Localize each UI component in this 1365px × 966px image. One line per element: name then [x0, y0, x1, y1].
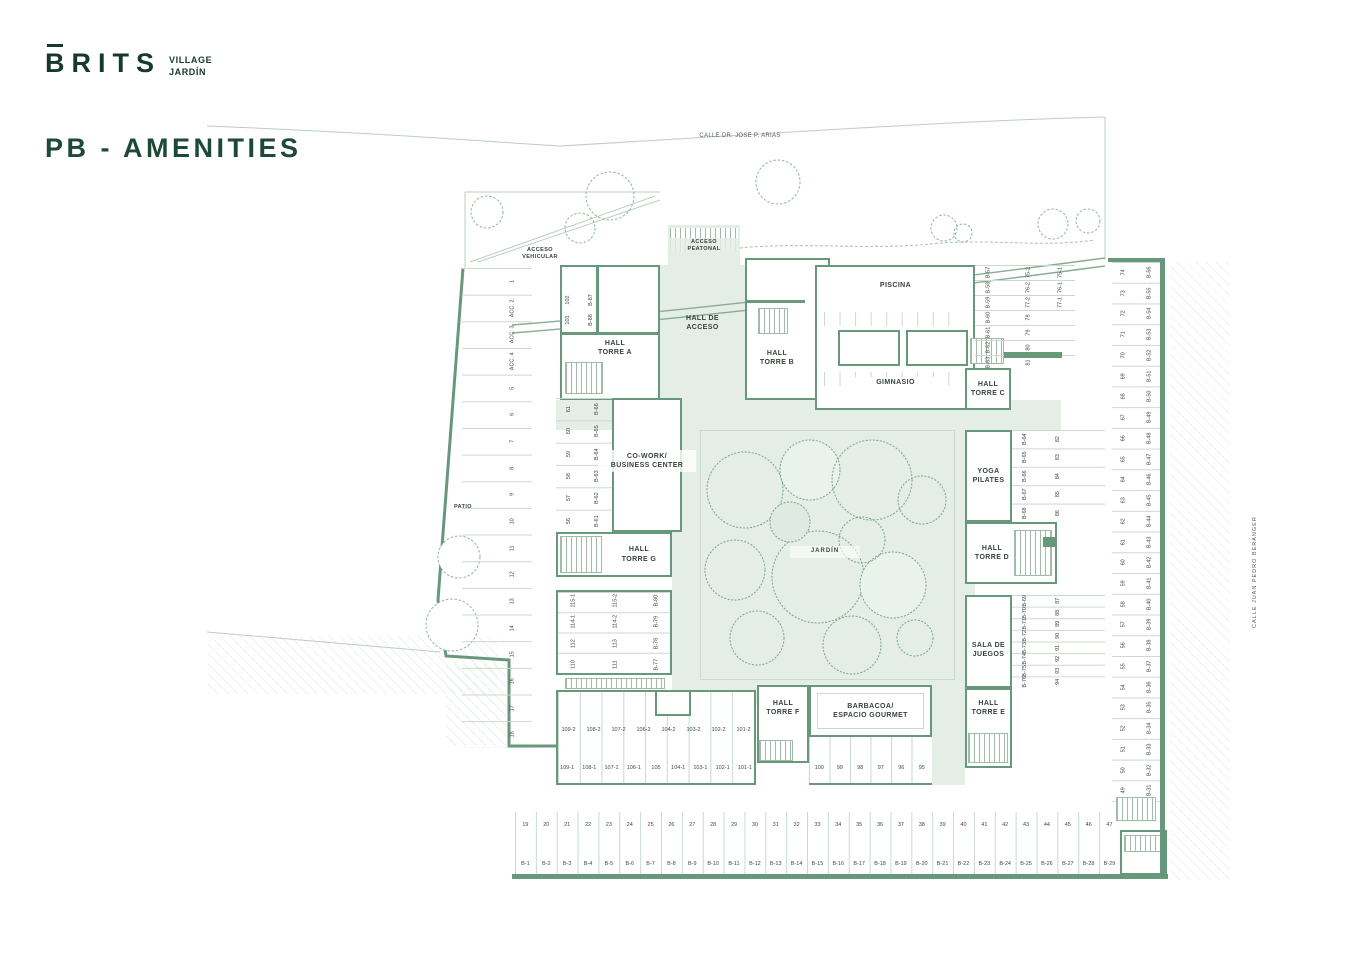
- stall-label: 101-2: [731, 718, 756, 742]
- stall-label: 27: [682, 816, 703, 834]
- stall-label: 94: [1052, 669, 1064, 695]
- stall-label: B-24: [995, 856, 1016, 872]
- bottomleft-notch: [655, 690, 691, 716]
- shrub-line: [740, 240, 1095, 248]
- stall-label: 101-1: [734, 756, 756, 780]
- stall-label: 22: [578, 816, 599, 834]
- stall-label: B-61: [586, 508, 608, 534]
- stall-label: B-5: [598, 856, 619, 872]
- stall-label: 103-1: [689, 756, 711, 780]
- stall-label: 26: [661, 816, 682, 834]
- stall-label: 46: [1078, 816, 1099, 834]
- stall-label: 44: [1036, 816, 1057, 834]
- stall-label: B-77: [645, 650, 666, 678]
- pool-lane-1: [838, 330, 900, 366]
- torre-e-label: HALL TORRE E: [966, 698, 1011, 718]
- stall-label: B-14: [786, 856, 807, 872]
- stall-label: 25: [640, 816, 661, 834]
- stall-label: B-7: [640, 856, 661, 872]
- stall-label: B-15: [807, 856, 828, 872]
- torre-a-stair: [565, 362, 603, 394]
- street-label-top: CALLE DR. JOSE P. ARIAS: [640, 133, 840, 139]
- stall-label: 29: [724, 816, 745, 834]
- midleft-col-c: B-80B-79B-78B-77: [642, 590, 670, 675]
- stall-label: B-8: [661, 856, 682, 872]
- stall-label: B-1: [515, 856, 536, 872]
- stall-label: 100: [809, 758, 830, 778]
- stall-label: B-12: [744, 856, 765, 872]
- right-strip-codes: B-56B-55B-54B-53B-52B-51B-50B-49B-48B-47…: [1138, 262, 1162, 822]
- cowork-label: CO-WORK/ BUSINESS CENTER: [598, 450, 696, 472]
- right-strip-numbers: 7473727170696867666564636261605958575655…: [1112, 262, 1136, 822]
- stall-label: 109-1: [556, 756, 578, 780]
- midleft-col-a: 115-1114-1112110: [558, 590, 588, 675]
- stall-label: 105: [645, 756, 667, 780]
- stall-label: B-6: [619, 856, 640, 872]
- topright-codes: B-57B-58B-59B-60B-61B-62B-63: [975, 265, 1001, 370]
- stall-label: B-63: [981, 350, 996, 376]
- stall-label: 107-2: [606, 718, 631, 742]
- torre-g-label: HALL TORRE G: [608, 538, 670, 571]
- stall-label: B-25: [1016, 856, 1037, 872]
- torre-b-wall: [745, 300, 805, 303]
- hall-acceso-label: HALL DE ACCESO: [660, 310, 745, 336]
- stall-label: 41: [974, 816, 995, 834]
- stall-label: 104-1: [667, 756, 689, 780]
- yoga-label: YOGA PILATES: [966, 466, 1011, 486]
- stall-label: 106-1: [623, 756, 645, 780]
- stall-label: 56: [558, 508, 580, 534]
- stall-label: B-9: [682, 856, 703, 872]
- yoga-parking-codes: B-64B-65B-66B-67B-68: [1012, 430, 1038, 522]
- stall-label: 108-2: [581, 718, 606, 742]
- barbacoa-label: BARBACOA/ ESPACIO GOURMET: [817, 693, 924, 729]
- south-perimeter-wall: [512, 874, 1168, 879]
- torre-a-codes-1: 102101: [561, 290, 575, 330]
- torre-e-stair: [968, 733, 1008, 763]
- torre-d-shaft: [1043, 537, 1057, 547]
- stall-label: 10: [500, 506, 527, 536]
- stall-label: 104-2: [656, 718, 681, 742]
- bottom-strip-numbers: 1920212223242526272829303132333435363738…: [515, 816, 1120, 834]
- stall-label: 109-2: [556, 718, 581, 742]
- stall-label: 1: [500, 266, 527, 296]
- jardin-label: JARDÍN: [790, 546, 860, 558]
- torre-a-codes-2: B-87B-88: [584, 290, 598, 330]
- stall-label: 34: [828, 816, 849, 834]
- torre-b-label: HALL TORRE B: [748, 348, 806, 368]
- street-label-right: CALLE JUAN PEDRO BERANGER: [1252, 492, 1264, 652]
- stall-label: B-76: [1019, 669, 1031, 695]
- stall-label: 21: [557, 816, 578, 834]
- stall-label: 111: [604, 649, 625, 679]
- stall-label: B-26: [1036, 856, 1057, 872]
- stall-label: 40: [953, 816, 974, 834]
- stall-label: B-3: [557, 856, 578, 872]
- stall-label: B-27: [1057, 856, 1078, 872]
- torre-a-wall: [560, 332, 660, 335]
- bottom-strip-codes: B-1B-2B-3B-4B-5B-6B-7B-8B-9B-10B-11B-12B…: [515, 856, 1120, 872]
- stall-label: B-22: [953, 856, 974, 872]
- stall-label: B-2: [536, 856, 557, 872]
- stall-label: B-28: [1078, 856, 1099, 872]
- acceso-peatonal-label: ACCESO PEATONAL: [668, 238, 740, 254]
- stall-label: 16: [500, 666, 527, 696]
- east-perimeter-wall: [1160, 258, 1165, 879]
- stall-label: 28: [703, 816, 724, 834]
- west-parking-numbers: 1ACC. 2ACC. 3ACC. 4567891011121314151617…: [498, 268, 528, 748]
- stall-label: B-10: [703, 856, 724, 872]
- bottomleft-row-top: 109-2108-2107-2106-2104-2103-2102-2101-2: [556, 718, 756, 742]
- stall-label: 99: [830, 758, 851, 778]
- stall-label: 36: [870, 816, 891, 834]
- sala-juegos-label: SALA DE JUEGOS: [966, 640, 1011, 660]
- topright-numbers-1: 75-176-177-1: [1046, 265, 1074, 310]
- stall-label: B-87: [581, 293, 601, 307]
- stall-label: 33: [807, 816, 828, 834]
- juegos-parking-numbers: 8788899091929394: [1045, 595, 1071, 688]
- stall-label: 96: [891, 758, 912, 778]
- torre-b-stair: [758, 308, 788, 334]
- stall-label: 95: [912, 758, 933, 778]
- stall-label: 35: [849, 816, 870, 834]
- bottomcenter-numbers: 1009998979695: [809, 758, 932, 778]
- acceso-vehicular-label: ACCESO VEHICULAR: [505, 246, 575, 262]
- stall-label: 13: [500, 586, 527, 616]
- piscina-label: PISCINA: [848, 280, 943, 292]
- stall-label: B-88: [581, 313, 601, 327]
- stall-label: 103-2: [681, 718, 706, 742]
- stall-label: B-29: [1099, 856, 1120, 872]
- stall-label: B-19: [890, 856, 911, 872]
- stall-label: B-4: [578, 856, 599, 872]
- stall-label: 102: [558, 293, 578, 307]
- stall-label: 7: [500, 426, 527, 456]
- stall-label: 98: [850, 758, 871, 778]
- stall-label: 24: [619, 816, 640, 834]
- bottomleft-row-bottom: 109-1108-1107-1106-1105104-1103-1102-110…: [556, 756, 756, 780]
- yoga-parking-numbers: 8283848586: [1045, 430, 1071, 522]
- stall-label: B-16: [828, 856, 849, 872]
- tree-icon: [471, 160, 1100, 243]
- stall-label: B-20: [911, 856, 932, 872]
- stall-label: 18: [500, 720, 527, 750]
- street-top-line: [207, 117, 1105, 146]
- stall-label: 108-1: [578, 756, 600, 780]
- stall-label: B-11: [724, 856, 745, 872]
- east-strip-stair: [1116, 797, 1156, 821]
- ramp: [565, 678, 665, 689]
- pool-loungers-top: [824, 312, 964, 326]
- stall-label: B-13: [765, 856, 786, 872]
- torre-c-label: HALL TORRE C: [966, 380, 1010, 398]
- stall-label: 12: [500, 560, 527, 590]
- stall-label: 110: [562, 649, 583, 679]
- cowork-parking-numbers: 616059585756: [556, 398, 582, 532]
- stall-label: 19: [515, 816, 536, 834]
- stall-label: 38: [911, 816, 932, 834]
- torre-f-stair: [759, 740, 793, 761]
- pool-lane-2: [906, 330, 968, 366]
- southeast-stair: [1124, 835, 1162, 852]
- stall-label: 39: [932, 816, 953, 834]
- stall-label: 107-1: [600, 756, 622, 780]
- stall-label: 23: [598, 816, 619, 834]
- stall-label: 42: [995, 816, 1016, 834]
- topright-wall: [1004, 352, 1062, 358]
- juegos-parking-codes: B-69B-70B-71B-72B-73B-74B-75B-76: [1012, 595, 1038, 688]
- torre-f-label: HALL TORRE F: [758, 698, 808, 718]
- stall-label: 9: [500, 480, 527, 510]
- stall-label: B-18: [870, 856, 891, 872]
- stall-label: 20: [536, 816, 557, 834]
- stall-label: 102-1: [712, 756, 734, 780]
- stall-label: B-23: [974, 856, 995, 872]
- east-strip-top-wall: [1108, 258, 1165, 262]
- stall-label: ACC. 4: [500, 346, 527, 376]
- stall-label: 30: [744, 816, 765, 834]
- stall-label: 106-2: [631, 718, 656, 742]
- stall-label: B-17: [849, 856, 870, 872]
- stall-label: 102-2: [706, 718, 731, 742]
- stall-label: 31: [765, 816, 786, 834]
- midleft-col-b: 115-2114-2113111: [600, 590, 630, 675]
- stall-label: 37: [890, 816, 911, 834]
- stall-label: ACC. 3: [500, 320, 527, 350]
- torre-g-stair: [560, 536, 602, 573]
- site-line-sw: [207, 632, 440, 652]
- stall-label: B-21: [932, 856, 953, 872]
- torre-d-label: HALL TORRE D: [966, 543, 1018, 563]
- stall-label: 97: [871, 758, 892, 778]
- patio-label: PATIO: [445, 503, 481, 513]
- gimnasio-label: GIMNASIO: [848, 377, 943, 389]
- stall-label: 15: [500, 640, 527, 670]
- stall-label: 32: [786, 816, 807, 834]
- stall-label: 6: [500, 400, 527, 430]
- floorplan-page: BRITS VILLAGE JARDÍN PB - AMENITIES: [0, 0, 1365, 966]
- stall-label: 101: [558, 313, 578, 327]
- stall-label: 43: [1016, 816, 1037, 834]
- stall-label: 77-1: [1053, 289, 1068, 317]
- torre-a-label: HALL TORRE A: [585, 338, 645, 358]
- stall-label: 45: [1057, 816, 1078, 834]
